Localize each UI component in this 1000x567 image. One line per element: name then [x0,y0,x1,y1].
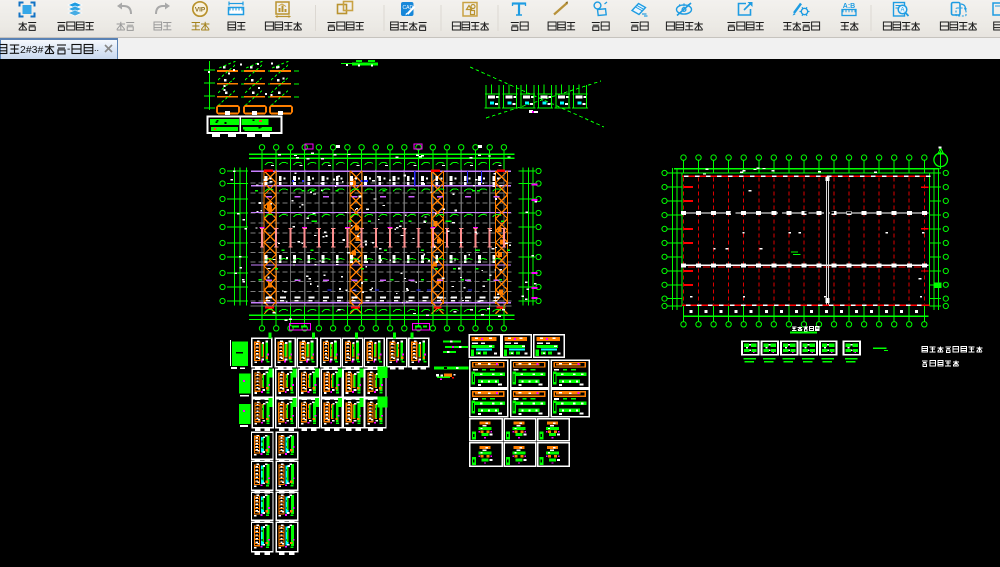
svg-text:A: A [900,8,904,14]
svg-text:VIP: VIP [195,7,206,14]
svg-text:-: - [67,44,70,55]
svg-text:2#3#: 2#3# [20,44,44,56]
svg-text:..: .. [94,43,99,53]
